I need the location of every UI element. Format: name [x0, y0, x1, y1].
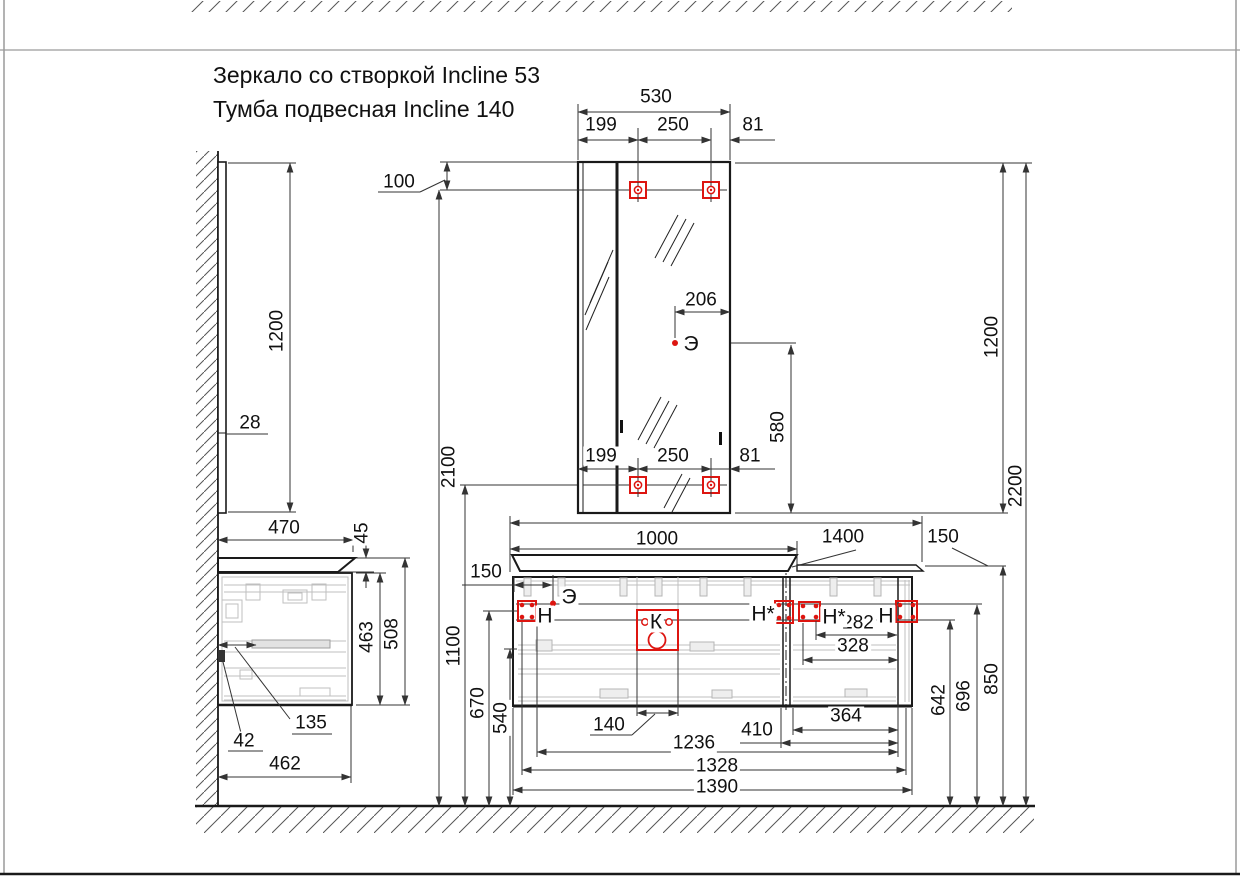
- dim-328: 328: [835, 637, 871, 656]
- dim-470: 470: [266, 519, 302, 538]
- mount-star-1-label: Н*: [749, 604, 776, 625]
- dim-135: 135: [293, 714, 329, 733]
- dim-250-top: 250: [655, 116, 691, 135]
- dim-364: 364: [828, 707, 864, 726]
- drawing-title-vanity: Тумба подвесная Incline 140: [213, 96, 514, 124]
- dim-850: 850: [983, 661, 1002, 697]
- outlet-lower-label: Э: [559, 587, 578, 608]
- dim-250-bottom: 250: [655, 447, 691, 466]
- mount-right-label: Н: [876, 606, 895, 627]
- dim-410: 410: [739, 721, 775, 740]
- dim-206: 206: [683, 291, 719, 310]
- dim-462: 462: [267, 755, 303, 774]
- dim-530: 530: [638, 88, 674, 107]
- mount-left-label: Н: [535, 606, 554, 627]
- dim-28: 28: [237, 414, 262, 433]
- dim-1000: 1000: [634, 530, 680, 549]
- dim-199-top: 199: [583, 116, 619, 135]
- dim-540: 540: [492, 700, 511, 736]
- outlet-upper-dot: [672, 340, 678, 346]
- vanity-front-view: [512, 555, 982, 710]
- dim-580: 580: [769, 409, 788, 445]
- mirror-side-dims: [218, 163, 353, 552]
- dim-42: 42: [231, 732, 256, 751]
- dim-642: 642: [930, 682, 949, 718]
- ceiling-hatch-icon: [190, 1, 1012, 12]
- dim-150-right: 150: [925, 528, 961, 547]
- dim-696: 696: [955, 678, 974, 714]
- dim-45: 45: [353, 520, 372, 545]
- dim-81-top: 81: [740, 116, 765, 135]
- floor-hatch-icon: [195, 806, 1035, 833]
- dim-1200-mirror-side: 1200: [268, 308, 287, 354]
- dim-81-bottom: 81: [737, 447, 762, 466]
- vanity-side-view: [218, 558, 355, 705]
- mount-star-2-label: Н*: [820, 607, 847, 628]
- dim-150-outlet: 150: [468, 563, 504, 582]
- dim-1100: 1100: [445, 624, 464, 669]
- dim-2200: 2200: [1007, 463, 1026, 509]
- extension-lines: [440, 162, 1032, 566]
- dim-1400: 1400: [820, 528, 866, 547]
- right-vertical-dims: [791, 163, 1026, 806]
- dim-1328: 1328: [694, 757, 740, 776]
- dim-1390: 1390: [694, 778, 740, 797]
- dim-140: 140: [591, 716, 627, 735]
- dim-508: 508: [383, 616, 402, 652]
- dim-1236: 1236: [671, 734, 717, 753]
- drawing-canvas: [0, 0, 1240, 880]
- wall-hatch-icon: [196, 151, 218, 806]
- dim-100: 100: [381, 173, 417, 192]
- dim-670: 670: [469, 685, 488, 721]
- drain-label: К: [648, 612, 664, 633]
- dim-2100: 2100: [440, 444, 459, 490]
- dim-1200-mirror-front: 1200: [983, 314, 1002, 360]
- mirror-side-view: [218, 162, 226, 513]
- drawing-title-mirror: Зеркало со створкой Incline 53: [213, 62, 540, 90]
- dim-463: 463: [358, 619, 377, 655]
- drawing-page: Зеркало со створкой Incline 53 Тумба под…: [0, 0, 1240, 880]
- dim-199-bottom: 199: [583, 447, 619, 466]
- outlet-upper-label: Э: [681, 334, 700, 355]
